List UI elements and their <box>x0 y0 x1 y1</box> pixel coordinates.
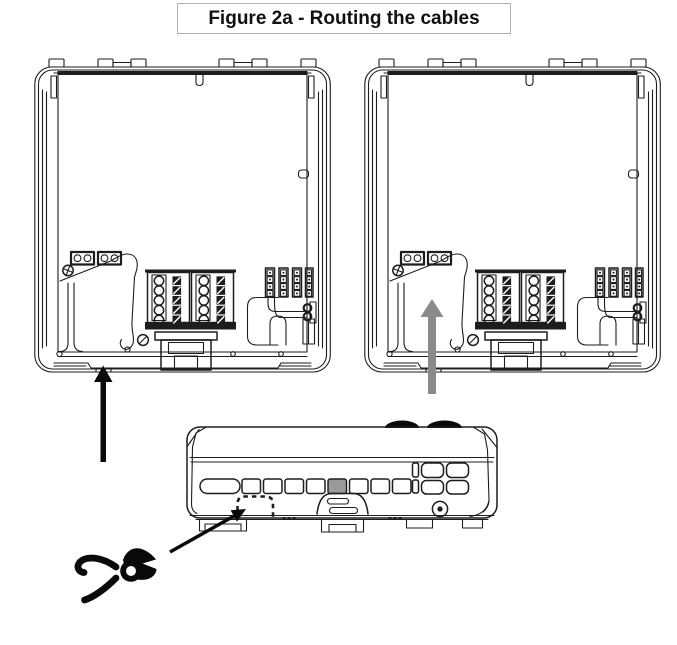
left-bevel <box>188 428 206 514</box>
screw-hole <box>432 501 447 516</box>
wire-cutter-pliers-icon <box>78 548 156 600</box>
figure-2a-routing-the-cables: Figure 2a - Routing the cables <box>0 0 677 645</box>
centre-clip-dome <box>317 494 368 515</box>
vent-slots <box>200 479 411 494</box>
up-arrow-black-icon <box>94 366 113 463</box>
right-bevel <box>470 428 497 517</box>
top-band-lines <box>190 458 494 463</box>
centre-filled-slot <box>328 479 347 494</box>
backplate-left <box>35 59 331 372</box>
right-vent-grid <box>413 463 469 494</box>
diagram-canvas <box>0 0 677 645</box>
backplate-right <box>365 59 661 372</box>
up-arrow-gray-icon <box>421 299 444 394</box>
